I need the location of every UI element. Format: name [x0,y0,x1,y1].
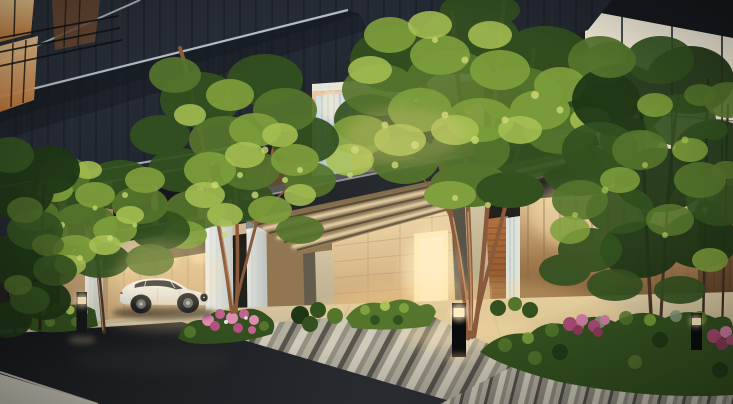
scene-rendering [0,0,733,404]
vignette [0,0,733,404]
